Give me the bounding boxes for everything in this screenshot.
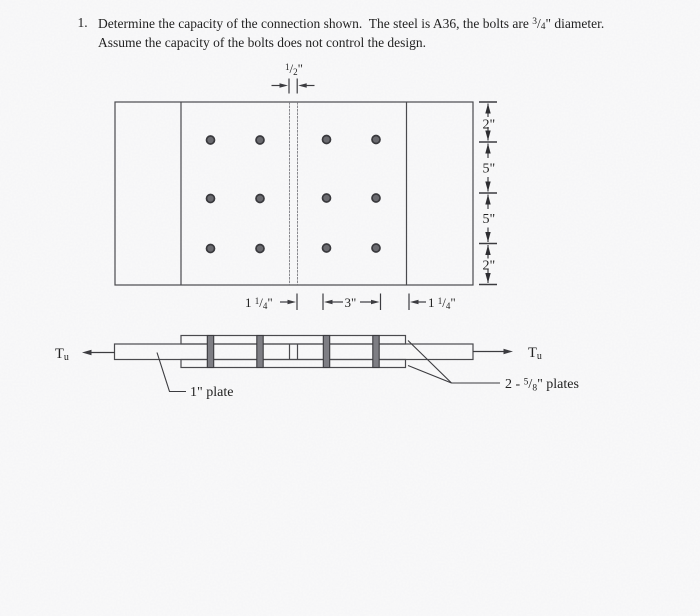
svg-text:5": 5" xyxy=(483,212,496,227)
svg-text:5": 5" xyxy=(483,162,496,177)
svg-text:2": 2" xyxy=(483,118,496,133)
svg-text:2 - 5/8" plates: 2 - 5/8" plates xyxy=(505,377,579,394)
svg-text:1" plate: 1" plate xyxy=(190,385,233,400)
svg-text:2": 2" xyxy=(483,259,496,274)
svg-text:1 1/4": 1 1/4" xyxy=(428,295,456,311)
svg-text:1 1/4": 1 1/4" xyxy=(245,295,273,311)
svg-text:3": 3" xyxy=(345,295,357,310)
